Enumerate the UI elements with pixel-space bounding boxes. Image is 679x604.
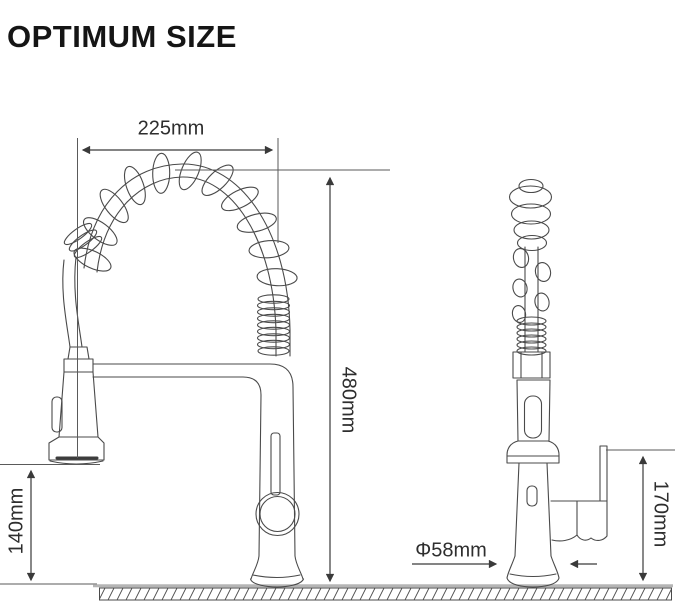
spring-top-rings: [510, 180, 552, 251]
dim-label-spout-width: 225mm: [138, 118, 205, 141]
page-title: OPTIMUM SIZE: [7, 19, 237, 55]
spring-dense-coil: [258, 295, 290, 355]
diagram-canvas: OPTIMUM SIZE 225mm 480mm 140mm 170mm Φ58…: [0, 0, 679, 604]
dim-label-handle-height: 170mm: [649, 481, 672, 548]
body-slot: [527, 486, 537, 506]
handle-front: [256, 433, 299, 536]
faucet-side-view: [507, 180, 607, 588]
faucet-dimension-drawing: [0, 0, 679, 604]
dim-label-head-clearance: 140mm: [6, 488, 29, 555]
dim-label-base-diameter: Φ58mm: [415, 540, 487, 563]
countertop: [0, 584, 673, 600]
spray-head-side: [507, 380, 559, 463]
dim-label-overall-height: 480mm: [337, 367, 360, 434]
faucet-front-view: [49, 149, 304, 587]
spout-holder-block: [513, 352, 550, 378]
dimension-lines: [0, 138, 675, 581]
spring-loose-loops: [511, 247, 552, 324]
